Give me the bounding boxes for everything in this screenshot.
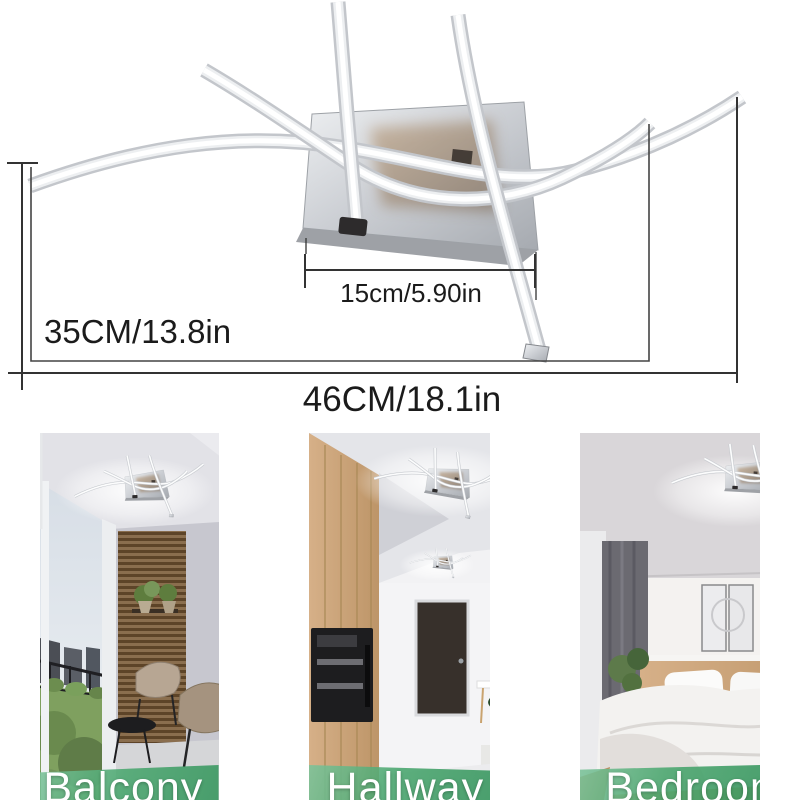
dimension-diagram: 15cm/5.90in 35CM/13.8in 46CM/18.1in: [0, 0, 800, 417]
balcony-scene: [40, 433, 219, 800]
room-gallery: Balcony: [0, 417, 800, 795]
photo-bedroom: Bedroom: [580, 433, 760, 800]
diagram-canvas: 15cm/5.90in 35CM/13.8in 46CM/18.1in: [0, 0, 800, 417]
product-light: [30, 2, 742, 362]
bedroom-label-band: Bedroom: [580, 765, 760, 800]
product-infographic: 15cm/5.90in 35CM/13.8in 46CM/18.1in: [0, 0, 800, 800]
hallway-label-band: Hallway: [309, 765, 490, 800]
dimension-label-base: 15cm/5.90in: [340, 278, 482, 308]
dimension-label-height: 35CM/13.8in: [44, 313, 231, 350]
hallway-scene: [309, 433, 490, 800]
photo-hallway: Hallway: [309, 433, 490, 800]
hallway-label: Hallway: [327, 766, 485, 800]
photo-balcony: Balcony: [40, 433, 219, 800]
bedroom-label: Bedroom: [605, 766, 760, 800]
bedroom-scene: [580, 433, 760, 800]
dimension-label-width: 46CM/18.1in: [303, 380, 501, 417]
